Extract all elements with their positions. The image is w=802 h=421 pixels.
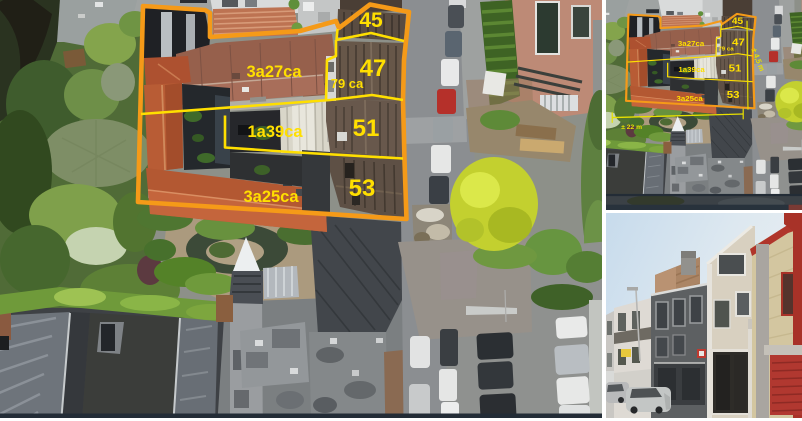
svg-text:± 22 m: ± 22 m bbox=[621, 124, 642, 131]
